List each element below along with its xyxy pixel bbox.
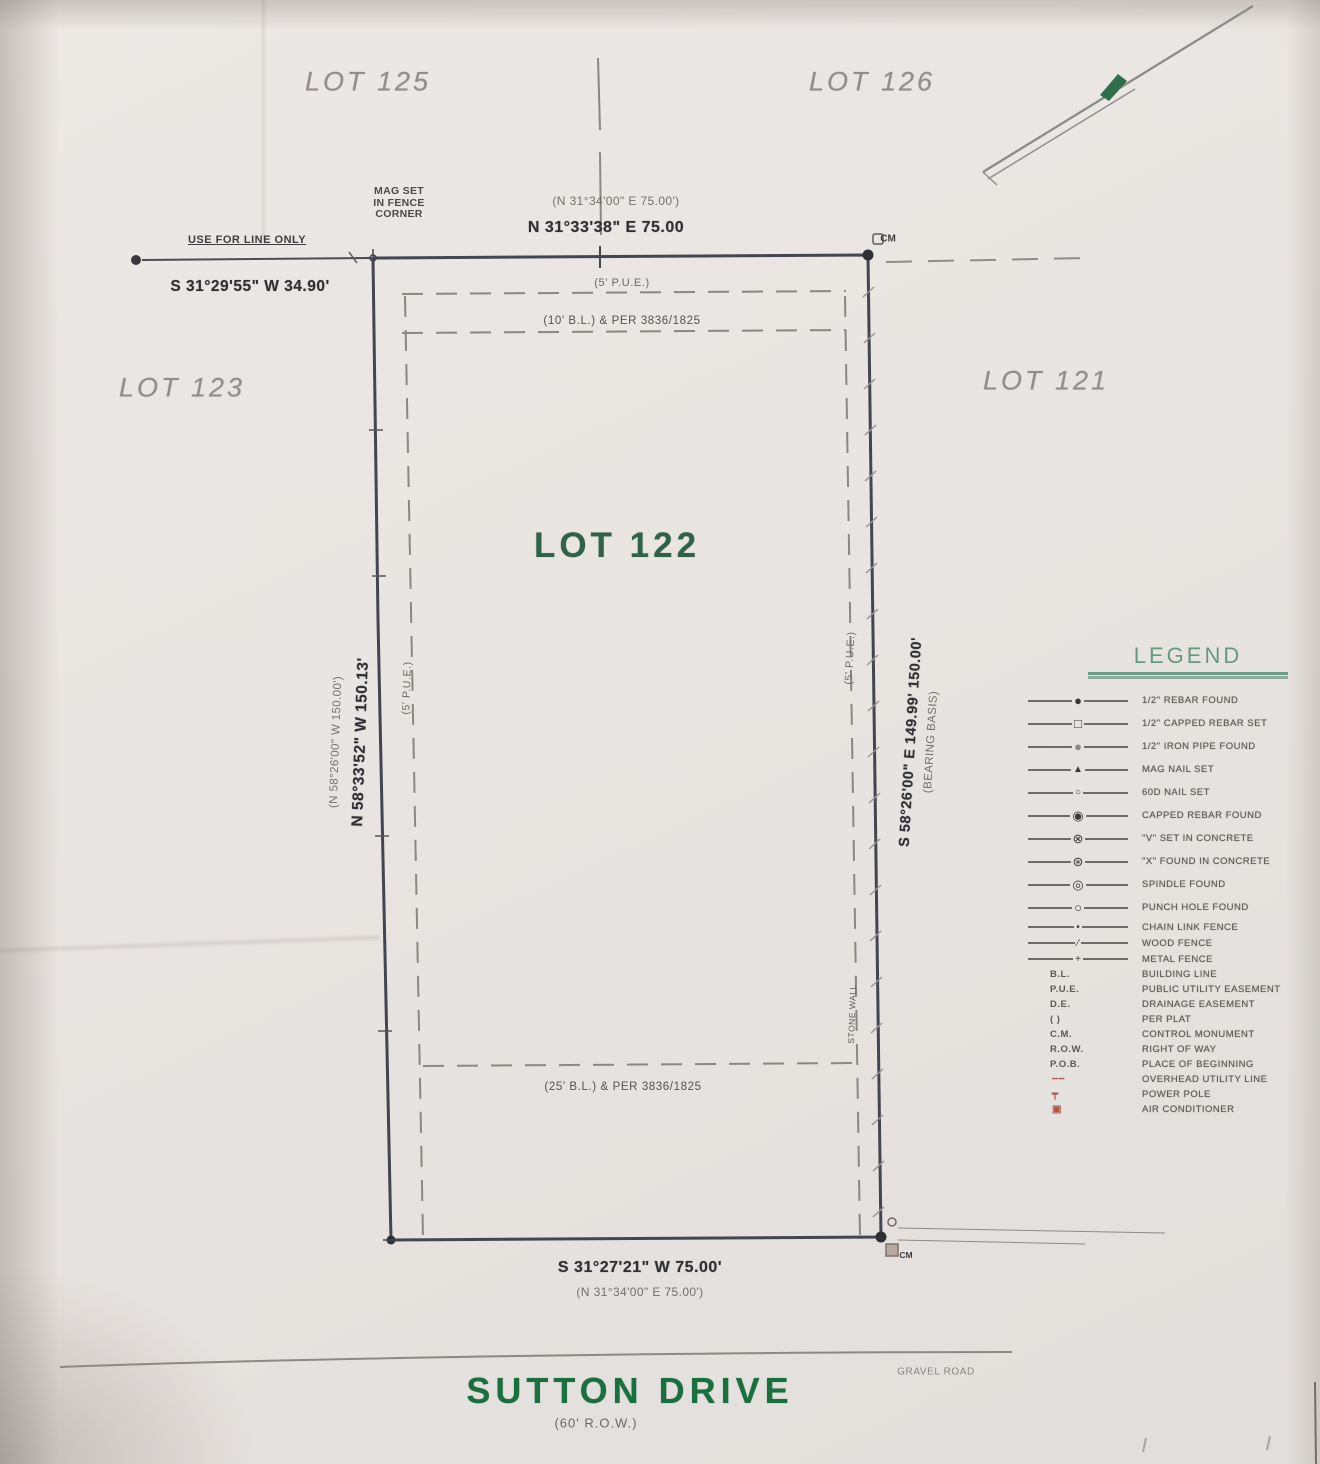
legend-item: ●1/2" REBAR FOUND [1028, 689, 1320, 712]
mag-set-note: MAG SET IN FENCE CORNER [373, 186, 424, 221]
control-monument-label-top: CM [880, 234, 896, 245]
road-surface-note: GRAVEL ROAD [897, 1367, 975, 1378]
overhead-utility-line-icon: ╌╌ [1050, 1074, 1067, 1085]
lot-121-label: LOT 121 [983, 366, 1109, 397]
top-measured-bearing: N 31°33'38" E 75.00 [528, 219, 684, 237]
legend-item: C.M.CONTROL MONUMENT [1028, 1027, 1320, 1042]
survey-plat-page: LOT 125 LOT 126 LOT 123 LOT 121 LOT 122 … [0, 0, 1320, 1464]
legend-item: ▣AIR CONDITIONER [1028, 1102, 1320, 1117]
lot-125-label: LOT 125 [305, 67, 431, 98]
capped-rebar-found-icon: ◉ [1070, 809, 1085, 822]
pue-top-label: (5' P.U.E.) [594, 277, 650, 289]
lot-126-label: LOT 126 [809, 67, 935, 98]
legend-item: ( )PER PLAT [1028, 1012, 1320, 1027]
legend-item: ◉CAPPED REBAR FOUND [1028, 804, 1320, 827]
legend: LEGEND ●1/2" REBAR FOUND □1/2" CAPPED RE… [1028, 643, 1320, 1117]
stone-wall-label: STONE WALL [846, 984, 858, 1044]
legend-item: P.O.B.PLACE OF BEGINNING [1028, 1057, 1320, 1072]
legend-title-underline [1088, 672, 1288, 675]
spindle-found-icon: ◎ [1070, 878, 1085, 891]
iron-pipe-found-icon: ● [1072, 740, 1084, 753]
mag-nail-set-icon: ▲ [1071, 763, 1085, 776]
legend-item: ╌╌OVERHEAD UTILITY LINE [1028, 1072, 1320, 1087]
legend-item: ○PUNCH HOLE FOUND [1028, 896, 1320, 919]
page-edge-and-scale [1143, 1382, 1316, 1464]
capped-rebar-set-icon: □ [1072, 717, 1084, 730]
rebar-found-icon: ● [1072, 694, 1084, 707]
x-found-in-concrete-icon: ⊛ [1071, 855, 1086, 868]
road-edge-line [60, 1352, 1012, 1367]
bottom-record-bearing: (N 31°34'00" E 75.00') [576, 1285, 703, 1299]
v-set-in-concrete-icon: ⊗ [1071, 832, 1086, 845]
air-conditioner-icon: ▣ [1050, 1104, 1064, 1115]
legend-item: ●1/2" IRON PIPE FOUND [1028, 735, 1320, 758]
tie-bearing: S 31°29'55" W 34.90' [170, 278, 329, 296]
north-arrow-icon [983, 6, 1253, 185]
easement-building-lines [402, 291, 860, 1238]
street-name: SUTTON DRIVE [466, 1370, 793, 1412]
tie-line-note: USE FOR LINE ONLY [188, 234, 306, 246]
building-line-top-label: (10' B.L.) & PER 3836/1825 [543, 315, 700, 327]
legend-item: B.L.BUILDING LINE [1028, 967, 1320, 982]
legend-item: D.E.DRAINAGE EASEMENT [1028, 997, 1320, 1012]
legend-item: □1/2" CAPPED REBAR SET [1028, 712, 1320, 735]
legend-item: •CHAIN LINK FENCE [1028, 919, 1320, 935]
legend-title: LEGEND [1098, 643, 1278, 669]
legend-item: ∕WOOD FENCE [1028, 935, 1320, 951]
chain-link-fence-icon: • [1074, 921, 1082, 934]
corner-monument-bottom-right [876, 1218, 1166, 1256]
building-line-bottom-label: (25' B.L.) & PER 3836/1825 [544, 1081, 701, 1093]
punch-hole-found-icon: ○ [1072, 901, 1084, 914]
stone-wall-hatching [863, 287, 884, 1217]
legend-item: R.O.W.RIGHT OF WAY [1028, 1042, 1320, 1057]
corner-monument-top-left [364, 249, 382, 267]
tie-line [131, 252, 371, 265]
lot-123-label: LOT 123 [119, 373, 245, 404]
legend-rows: ●1/2" REBAR FOUND □1/2" CAPPED REBAR SET… [1028, 689, 1320, 1117]
legend-item: P.U.E.PUBLIC UTILITY EASEMENT [1028, 982, 1320, 997]
right-of-way-width: (60' R.O.W.) [554, 1416, 637, 1431]
legend-item: ○60D NAIL SET [1028, 781, 1320, 804]
lot-division-line [598, 58, 601, 235]
legend-item: ┯POWER POLE [1028, 1087, 1320, 1102]
pue-left-label: (5' P.U.E.) [400, 661, 414, 715]
legend-item: ◎SPINDLE FOUND [1028, 873, 1320, 896]
top-record-bearing: (N 31°34'00" E 75.00') [552, 194, 679, 208]
control-monument-label-bottom: CM [899, 1250, 912, 1260]
corner-monument-bottom-left [383, 1236, 399, 1245]
power-pole-icon: ┯ [1050, 1089, 1061, 1100]
legend-item: ⊗"V" SET IN CONCRETE [1028, 827, 1320, 850]
legend-item: +METAL FENCE [1028, 951, 1320, 967]
legend-item: ▲MAG NAIL SET [1028, 758, 1320, 781]
lot-122-label: LOT 122 [534, 526, 700, 566]
boundary-extension-dashed [886, 258, 1088, 262]
metal-fence-icon: + [1073, 953, 1083, 966]
legend-item: ⊛"X" FOUND IN CONCRETE [1028, 850, 1320, 873]
bottom-measured-bearing: S 31°27'21" W 75.00' [558, 1259, 722, 1277]
60d-nail-set-icon: ○ [1073, 786, 1083, 799]
